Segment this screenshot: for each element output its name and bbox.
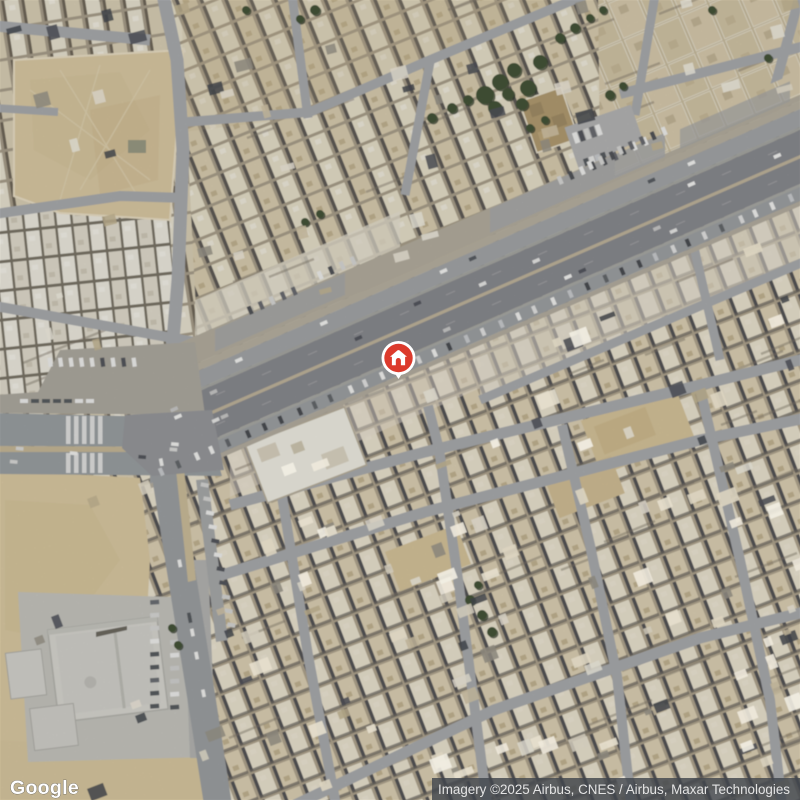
svg-text:Imagery ©2025 Airbus, CNES / A: Imagery ©2025 Airbus, CNES / Airbus, Max… xyxy=(438,782,790,797)
svg-text:Google: Google xyxy=(10,777,79,799)
